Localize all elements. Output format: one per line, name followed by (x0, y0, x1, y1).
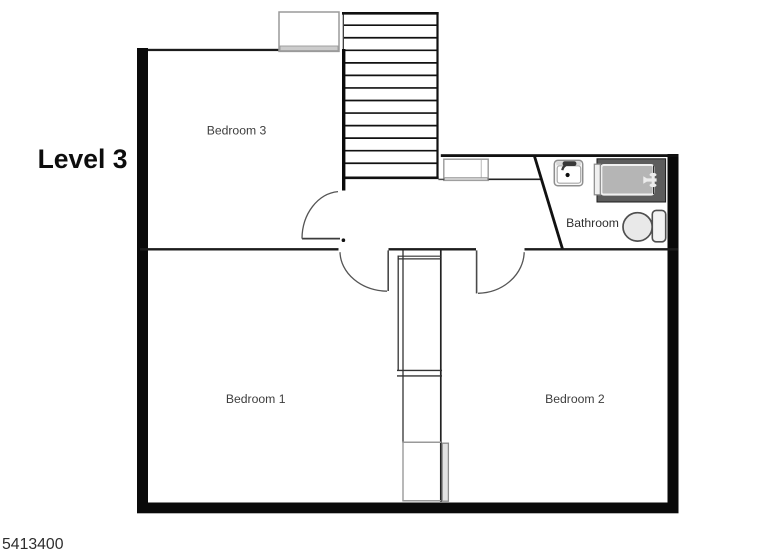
svg-text:Bedroom 2: Bedroom 2 (545, 392, 605, 406)
svg-text:5413400: 5413400 (2, 536, 64, 553)
svg-text:Bedroom 3: Bedroom 3 (207, 124, 267, 138)
svg-text:Level 3: Level 3 (38, 144, 128, 174)
svg-text:Bathroom: Bathroom (566, 216, 619, 230)
svg-text:Bedroom 1: Bedroom 1 (226, 392, 286, 406)
